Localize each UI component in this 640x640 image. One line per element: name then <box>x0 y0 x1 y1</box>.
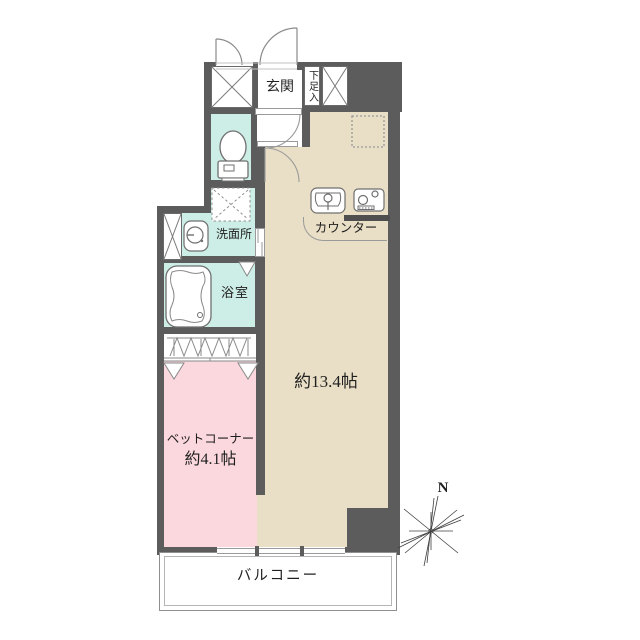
sliding-door-icon <box>258 229 262 256</box>
washing-machine-icon <box>212 188 250 221</box>
balcony-label: バルコニー <box>159 568 397 585</box>
floor-plan: 玄関 下足入 洗面所 浴室 カウンター 約13.4帖 ベットコーナー 約4.1帖… <box>0 0 640 640</box>
bed-corner-area-label: 約4.1帖 <box>164 451 257 469</box>
compass-icon <box>398 496 464 566</box>
bathtub-icon <box>166 266 211 327</box>
bed-corner-name-label: ベットコーナー <box>164 432 257 446</box>
hanger-rail-icon <box>164 338 256 361</box>
sink-basin-icon <box>184 221 208 251</box>
window-icon <box>217 546 345 556</box>
washroom-label: 洗面所 <box>211 228 257 242</box>
counter-label: カウンター <box>305 221 387 235</box>
compass-north-label: N <box>433 480 453 497</box>
stove-icon <box>354 189 384 211</box>
entrance-door-icon <box>216 28 297 69</box>
shoe-cabinet-label: 下足入 <box>306 70 318 103</box>
entrance-label: 玄関 <box>258 80 302 96</box>
kitchen-sink-icon <box>311 188 345 213</box>
living-area-label: 約13.4帖 <box>265 372 387 392</box>
hall-door-icon <box>265 114 300 182</box>
closet-door-marks-icon <box>164 363 258 379</box>
plan-linework <box>0 0 640 640</box>
refrigerator-space-icon <box>352 116 384 147</box>
bath-door-mark-icon <box>239 262 255 276</box>
bathroom-label: 浴室 <box>213 286 257 301</box>
toilet-icon <box>218 131 248 181</box>
